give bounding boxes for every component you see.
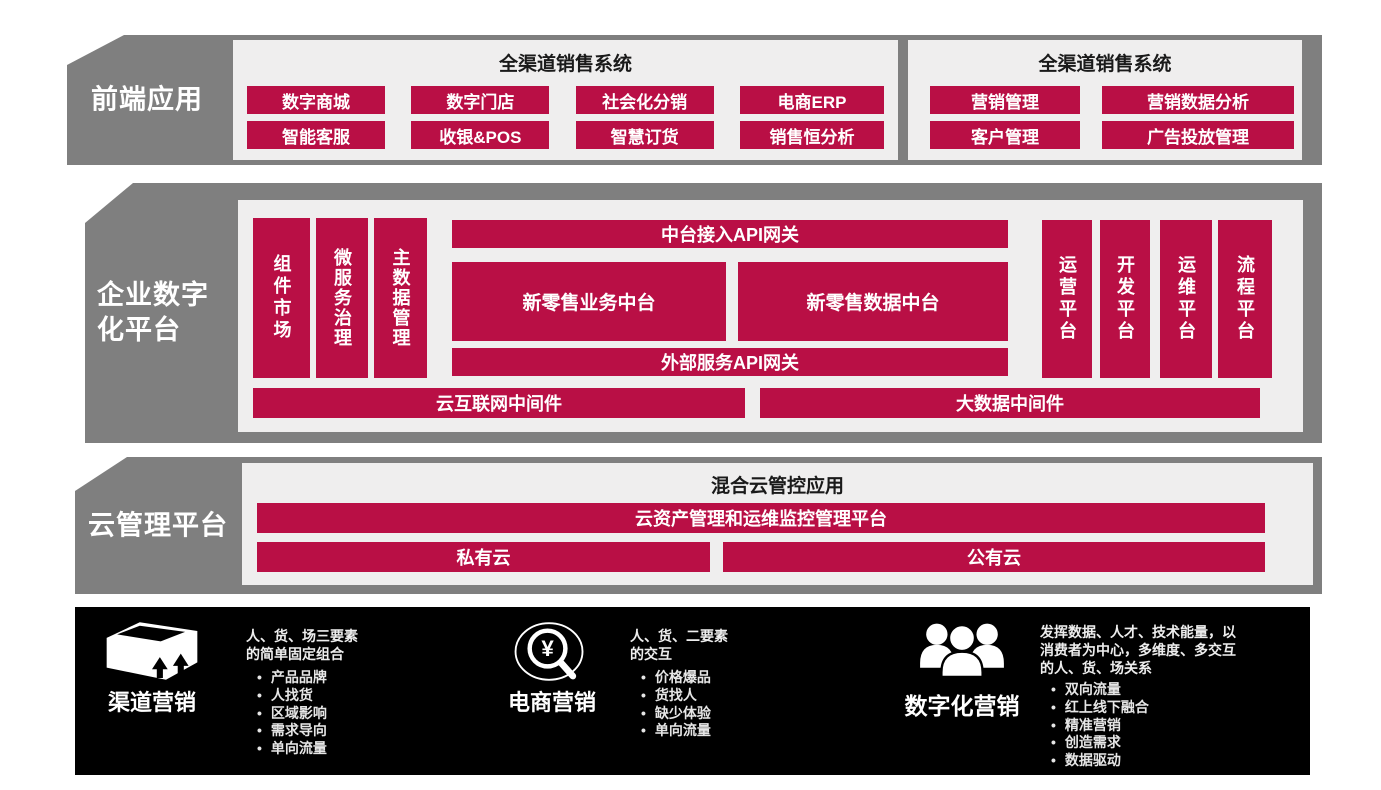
bullet-item: 数据驱动 [1047,752,1149,770]
bullet-item: 产品品牌 [253,669,327,687]
bar-public-cloud: 公有云 [723,542,1265,572]
marketing-footer-band: 渠道营销 人、货、场三要素 的简单固定组合 产品品牌 人找货 区域影响 需求导向… [75,607,1310,775]
box-new-retail-business-center: 新零售业务中台 [452,262,726,341]
marketing-item-label: 数字化营销 [887,687,1037,721]
bullet-item: 人找货 [253,687,327,705]
module-box: 营销管理 [930,86,1080,114]
pillar-component-market: 组件市场 [253,218,310,378]
marketing-item-desc: 人、货、二要素 的交互 [630,627,728,663]
magnifier-yen-icon: ¥ [502,621,602,685]
module-box: 智能客服 [247,121,385,149]
panel-title: 混合云管控应用 [242,471,1313,498]
bullet-item: 创造需求 [1047,734,1149,752]
bullet-item: 精准营销 [1047,717,1149,735]
panel-title: 全渠道销售系统 [233,49,898,76]
bullet-item: 需求导向 [253,722,327,740]
frontend-layer-band: 前端应用 全渠道销售系统 数字商城 数字门店 社会化分销 电商ERP 智能客服 … [67,35,1322,165]
module-box: 广告投放管理 [1102,121,1294,149]
platform-label-line2: 化平台 [97,313,209,348]
omnichannel-sales-panel-left: 全渠道销售系统 数字商城 数字门店 社会化分销 电商ERP 智能客服 收银&PO… [233,40,898,160]
module-box: 数字商城 [247,86,385,114]
cloud-panel: 混合云管控应用 云资产管理和运维监控管理平台 私有云 公有云 [242,463,1313,585]
marketing-item-bullets: 价格爆品 货找人 缺少体验 单向流量 [637,669,711,740]
marketing-item-label: 渠道营销 [92,685,212,717]
platform-layer-band: 企业数字 化平台 组件市场 微服务治理 主数据管理 中台接入API网关 新零售业… [85,183,1322,443]
bullet-item: 区域影响 [253,705,327,723]
people-group-icon [912,619,1012,683]
platform-layer-label: 企业数字 化平台 [97,278,209,348]
cloud-layer-band: 云管理平台 混合云管控应用 云资产管理和运维监控管理平台 私有云 公有云 [75,457,1322,594]
bar-cloud-asset-management: 云资产管理和运维监控管理平台 [257,503,1265,533]
omnichannel-sales-panel-right: 全渠道销售系统 营销管理 营销数据分析 客户管理 广告投放管理 [908,40,1302,160]
pillar-ops-maintenance-platform: 运维平台 [1160,220,1212,378]
marketing-item-desc: 发挥数据、人才、技术能量，以 消费者为中心，多维度、多交互 的人、货、场关系 [1040,623,1236,678]
bullet-item: 缺少体验 [637,705,711,723]
marketing-item-bullets: 产品品牌 人找货 区域影响 需求导向 单向流量 [253,669,327,758]
box-new-retail-data-center: 新零售数据中台 [738,262,1008,341]
bullet-item: 单向流量 [637,722,711,740]
bar-midplatform-api-gateway: 中台接入API网关 [452,220,1008,248]
button-row: 客户管理 广告投放管理 [930,121,1294,149]
bullet-item: 红上线下融合 [1047,699,1149,717]
bullet-item: 双向流量 [1047,681,1149,699]
pillar-microservice-governance: 微服务治理 [316,218,368,378]
bullet-item: 货找人 [637,687,711,705]
package-box-icon [97,617,207,685]
bar-bigdata-middleware: 大数据中间件 [760,388,1260,418]
bar-private-cloud: 私有云 [257,542,710,572]
pillar-master-data-management: 主数据管理 [374,218,427,378]
marketing-item-label: 电商营销 [497,685,607,717]
frontend-layer-label: 前端应用 [91,82,203,117]
module-box: 智慧订货 [576,121,714,149]
marketing-item-desc: 人、货、场三要素 的简单固定组合 [246,627,358,663]
pillar-process-platform: 流程平台 [1218,220,1272,378]
bullet-item: 价格爆品 [637,669,711,687]
pillar-operation-platform: 运营平台 [1042,220,1092,378]
module-box: 电商ERP [740,86,884,114]
button-row: 数字商城 数字门店 社会化分销 电商ERP [247,86,884,114]
module-box: 营销数据分析 [1102,86,1294,114]
platform-label-line1: 企业数字 [97,278,209,313]
cloud-layer-label: 云管理平台 [88,508,228,543]
marketing-item-bullets: 双向流量 红上线下融合 精准营销 创造需求 数据驱动 [1047,681,1149,770]
module-box: 收银&POS [411,121,549,149]
pillar-development-platform: 开发平台 [1100,220,1150,378]
module-box: 社会化分销 [576,86,714,114]
module-box: 客户管理 [930,121,1080,149]
platform-panel: 组件市场 微服务治理 主数据管理 中台接入API网关 新零售业务中台 新零售数据… [238,200,1303,432]
bullet-item: 单向流量 [253,740,327,758]
module-box: 销售恒分析 [740,121,884,149]
button-row: 智能客服 收银&POS 智慧订货 销售恒分析 [247,121,884,149]
module-box: 数字门店 [411,86,549,114]
bar-external-service-api-gateway: 外部服务API网关 [452,348,1008,376]
panel-title: 全渠道销售系统 [908,49,1302,76]
button-row: 营销管理 营销数据分析 [930,86,1294,114]
bar-cloud-internet-middleware: 云互联网中间件 [253,388,745,418]
architecture-diagram: 前端应用 全渠道销售系统 数字商城 数字门店 社会化分销 电商ERP 智能客服 … [0,0,1381,790]
svg-text:¥: ¥ [541,636,554,661]
